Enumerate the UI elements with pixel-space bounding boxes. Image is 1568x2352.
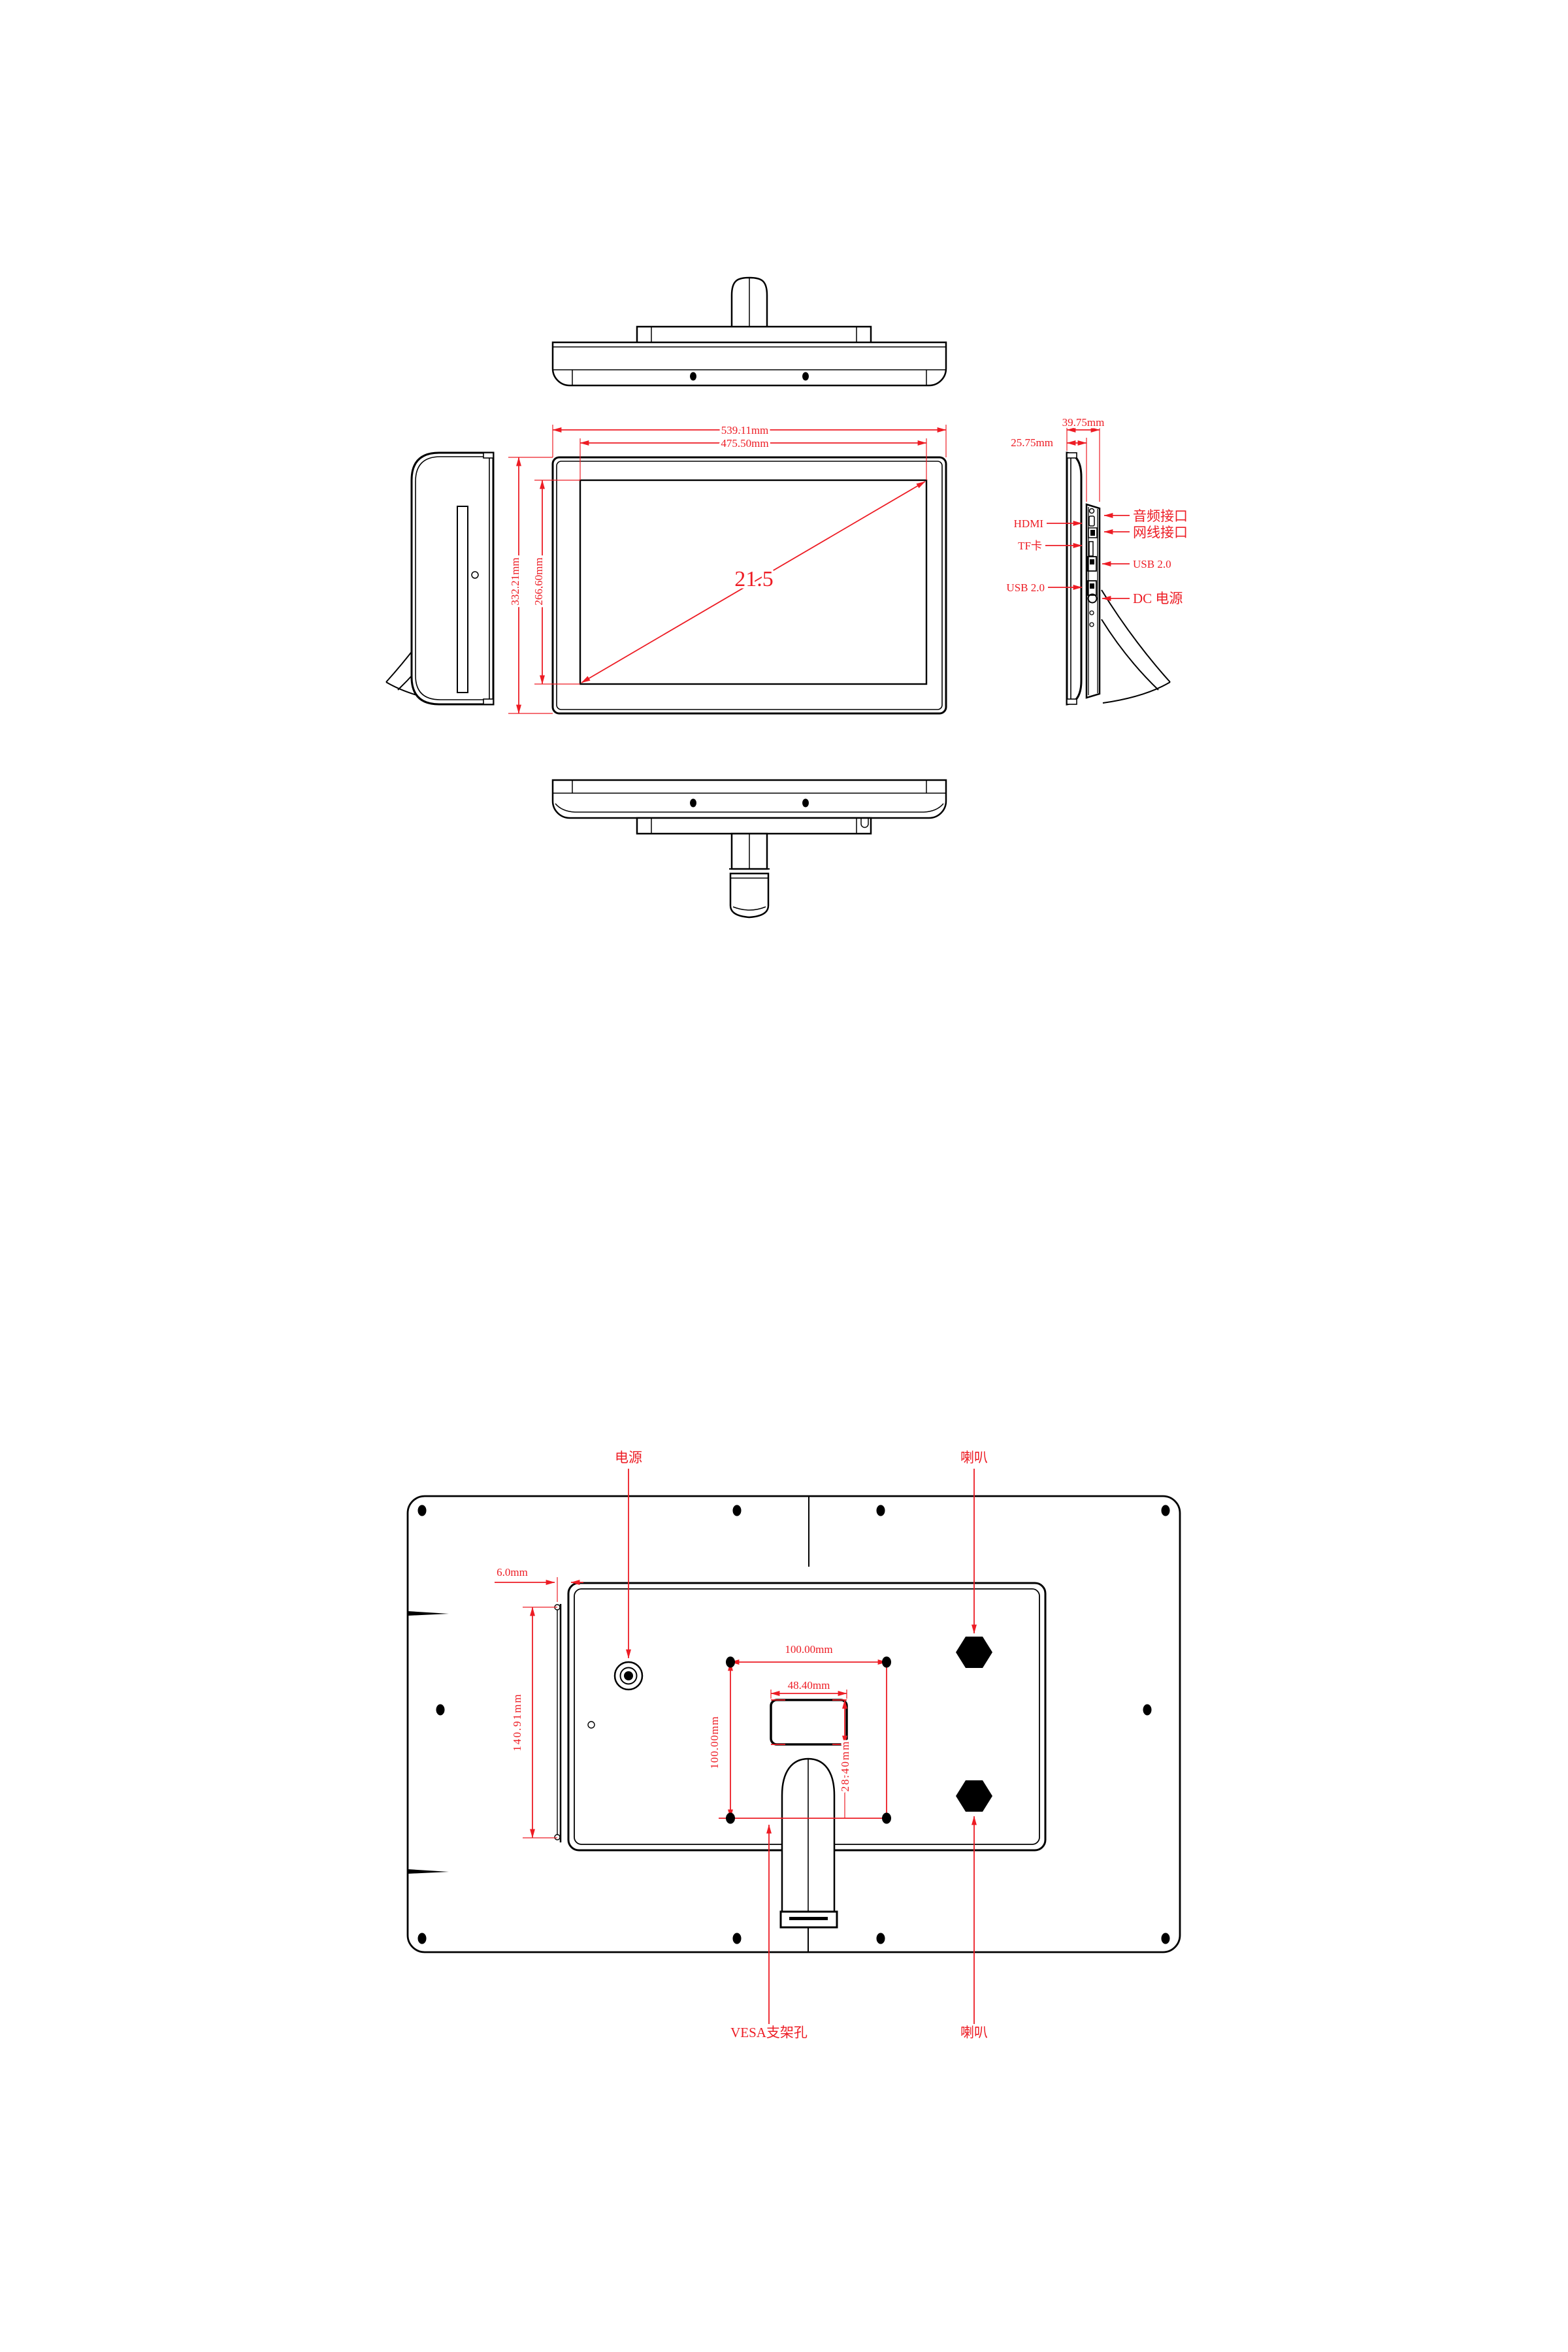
screw-hole bbox=[418, 1933, 427, 1944]
side-profile bbox=[412, 453, 493, 704]
stand-base bbox=[637, 327, 871, 344]
monitor-bottom-view bbox=[553, 780, 946, 917]
screw-hole bbox=[802, 799, 809, 808]
dim-bracket-height-label: 140.91mm bbox=[511, 1693, 523, 1751]
dim-slot-height-label: 28.40mm bbox=[839, 1740, 851, 1792]
side-profile bbox=[1067, 453, 1081, 704]
port-label-hdmi: HDMI bbox=[1014, 517, 1044, 530]
vesa-hole bbox=[726, 1657, 735, 1668]
bezel-notch bbox=[483, 699, 493, 704]
port-label-usb-left: USB 2.0 bbox=[1006, 581, 1045, 594]
vesa-label: VESA支架孔 bbox=[730, 2025, 808, 2040]
screw-hole bbox=[733, 1933, 742, 1944]
dim-outer-height-label: 332.21mm bbox=[509, 557, 521, 605]
vesa-hole bbox=[882, 1657, 891, 1668]
screw-hole bbox=[1162, 1505, 1170, 1516]
dim-slot-width-label: 48.40mm bbox=[788, 1679, 830, 1691]
dim-hinge-offset-label: 6.0mm bbox=[497, 1566, 528, 1578]
dim-depth-body-label: 25.75mm bbox=[1011, 436, 1053, 449]
screw-hole bbox=[1143, 1705, 1152, 1716]
monitor-technical-drawing: 21.5 539.11mm 475.50mm 332.21mm 266.60mm bbox=[0, 0, 1568, 2352]
screw-hole bbox=[877, 1505, 885, 1516]
port-label-audio: 音频接口 bbox=[1133, 508, 1188, 524]
stand-slot bbox=[771, 1700, 847, 1744]
speaker-label-top: 喇叭 bbox=[960, 1450, 988, 1465]
dim-screen-width-label: 475.50mm bbox=[721, 437, 768, 449]
monitor-body-top bbox=[553, 342, 946, 385]
bezel-notch bbox=[1067, 699, 1077, 704]
screw-hole bbox=[418, 1505, 427, 1516]
screw-hole bbox=[690, 372, 696, 381]
stand-foot bbox=[730, 874, 768, 917]
screw-hole bbox=[733, 1505, 742, 1516]
port-label-dc: DC 电源 bbox=[1133, 591, 1183, 606]
bezel-notch bbox=[483, 453, 493, 458]
screw-hole bbox=[802, 372, 809, 381]
dim-screen-height-label: 266.60mm bbox=[532, 557, 545, 605]
monitor-right-side-view: 39.75mm 25.75mm HDMI TF卡 USB 2.0 音频接口 网线… bbox=[1006, 416, 1188, 704]
port-label-lan: 网线接口 bbox=[1133, 525, 1188, 540]
dim-depth-total-label: 39.75mm bbox=[1062, 416, 1105, 429]
dim-vesa-height-label: 100.00mm bbox=[708, 1716, 721, 1769]
diagonal-size-label: 21.5 bbox=[734, 567, 774, 591]
stand-base bbox=[637, 818, 871, 834]
port-label-usb-right: USB 2.0 bbox=[1133, 558, 1171, 570]
dim-vesa-width-label: 100.00mm bbox=[785, 1643, 832, 1656]
dim-outer-width-label: 539.11mm bbox=[721, 424, 769, 436]
speaker-label-bottom: 喇叭 bbox=[960, 2025, 988, 2040]
screw-hole bbox=[877, 1933, 885, 1944]
monitor-left-side-view bbox=[386, 453, 493, 704]
vesa-hole bbox=[726, 1813, 735, 1824]
monitor-front-view: 21.5 539.11mm 475.50mm 332.21mm 266.60mm bbox=[508, 424, 946, 713]
screw-hole bbox=[1162, 1933, 1170, 1944]
monitor-top-view bbox=[553, 278, 946, 385]
monitor-rear-view: 100.00mm 100.00mm 48.40mm 28.40mm 6.0mm … bbox=[408, 1450, 1180, 2040]
bezel-notch bbox=[1067, 453, 1077, 458]
screw-hole bbox=[690, 799, 696, 808]
port-label-tf: TF卡 bbox=[1018, 540, 1042, 552]
screw-hole bbox=[436, 1705, 445, 1716]
vesa-hole bbox=[882, 1813, 891, 1824]
power-label: 电源 bbox=[615, 1450, 642, 1465]
